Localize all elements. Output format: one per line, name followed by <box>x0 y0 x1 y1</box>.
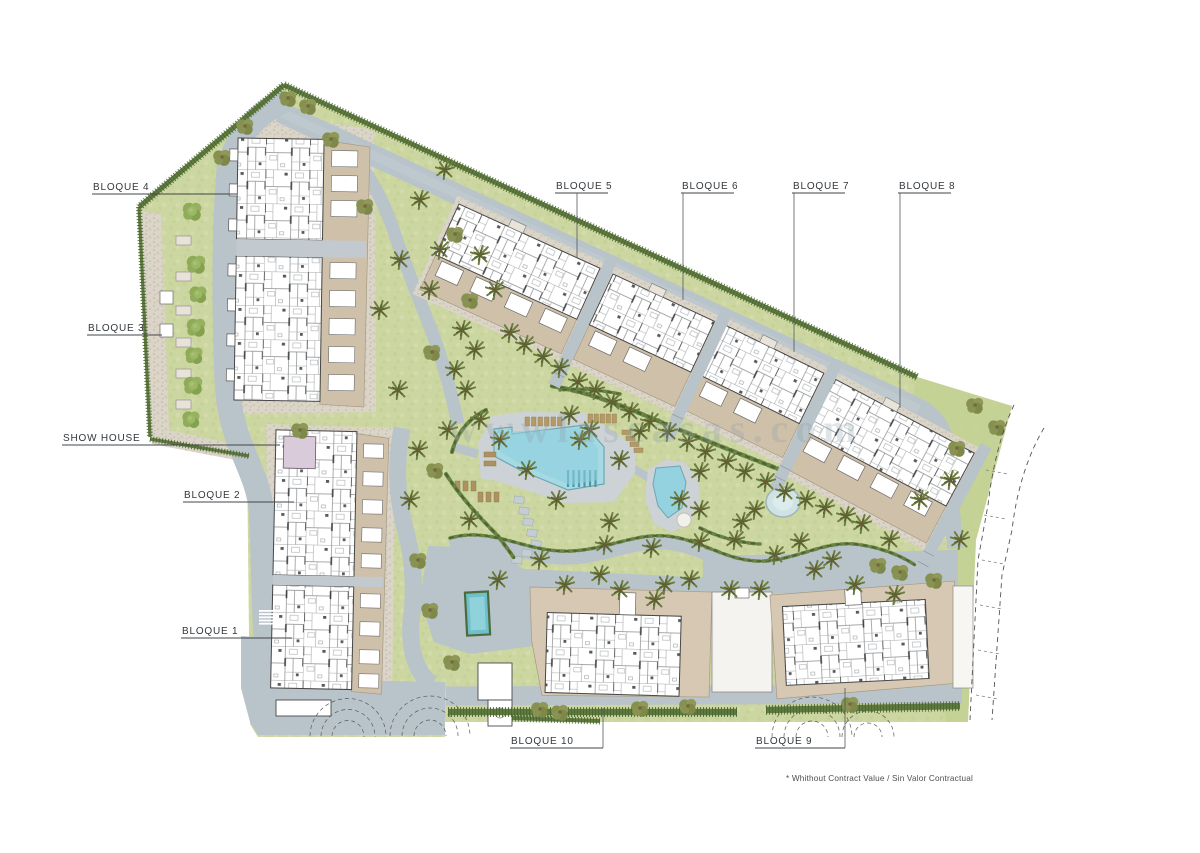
svg-text:BLOQUE 2: BLOQUE 2 <box>184 490 240 501</box>
svg-text:BLOQUE 6: BLOQUE 6 <box>682 181 738 192</box>
svg-text:BLOQUE 9: BLOQUE 9 <box>756 736 812 747</box>
svg-text:BLOQUE 5: BLOQUE 5 <box>556 181 612 192</box>
svg-text:BLOQUE 1: BLOQUE 1 <box>182 626 238 637</box>
svg-text:BLOQUE 7: BLOQUE 7 <box>793 181 849 192</box>
svg-text:SHOW HOUSE: SHOW HOUSE <box>63 433 140 444</box>
svg-text:BLOQUE 3: BLOQUE 3 <box>88 323 144 334</box>
svg-text:wwwlascasas.com: wwwlascasas.com <box>448 406 864 451</box>
svg-text:BLOQUE 8: BLOQUE 8 <box>899 181 955 192</box>
svg-text:* Whithout Contract Value / Si: * Whithout Contract Value / Sin Valor Co… <box>786 774 973 783</box>
svg-text:BLOQUE 4: BLOQUE 4 <box>93 182 149 193</box>
svg-text:BLOQUE 10: BLOQUE 10 <box>511 736 574 747</box>
